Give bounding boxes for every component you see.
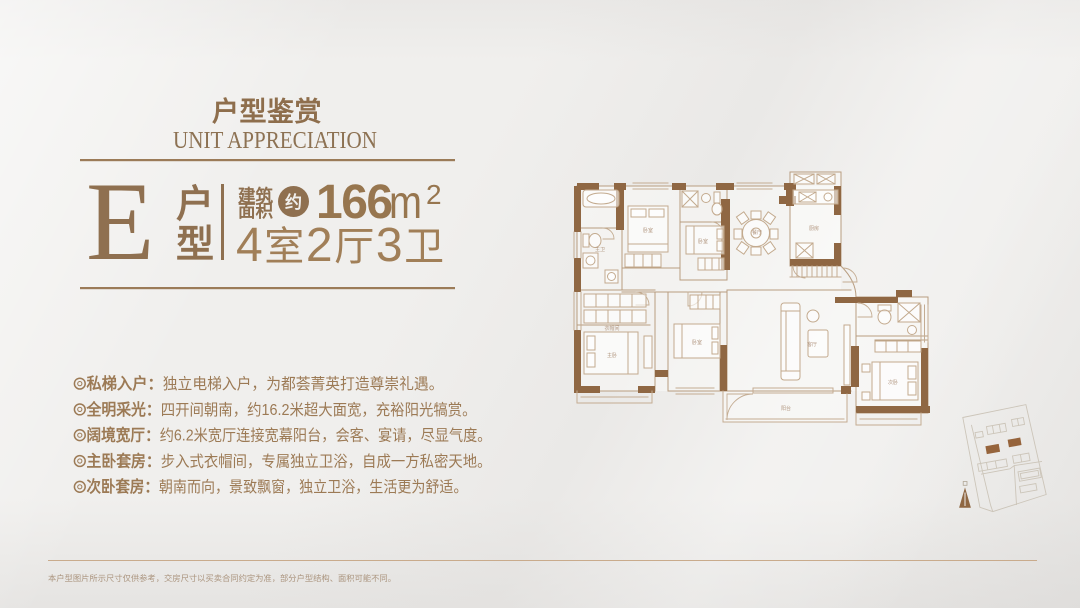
svg-text:卧室: 卧室 bbox=[698, 238, 708, 245]
svg-text:衣帽间: 衣帽间 bbox=[604, 325, 619, 332]
svg-text:面积: 面积 bbox=[238, 201, 273, 221]
svg-text:次卧套房：朝南而向，景致飘窗，独立卫浴，生活更为舒适。: 次卧套房：朝南而向，景致飘窗，独立卫浴，生活更为舒适。 bbox=[87, 477, 468, 496]
svg-text:卧室: 卧室 bbox=[692, 339, 702, 346]
svg-text:阔境宽厅：约6.2米宽厅连接宽幕阳台，会客、宴请，尽显气度。: 阔境宽厅：约6.2米宽厅连接宽幕阳台，会客、宴请，尽显气度。 bbox=[87, 426, 492, 445]
svg-text:型: 型 bbox=[176, 224, 214, 266]
svg-text:4室2厅3卫: 4室2厅3卫 bbox=[236, 219, 446, 272]
svg-text:阳台: 阳台 bbox=[781, 405, 791, 412]
svg-text:客厅: 客厅 bbox=[807, 341, 817, 348]
svg-text:厨房: 厨房 bbox=[809, 225, 819, 232]
svg-text:2: 2 bbox=[426, 179, 442, 210]
svg-text:本户型图片所示尺寸仅供参考，交房尺寸以买卖合同约定为准，部分: 本户型图片所示尺寸仅供参考，交房尺寸以买卖合同约定为准，部分户型结构、面积可能不… bbox=[48, 573, 396, 583]
svg-text:UNIT APPRECIATION: UNIT APPRECIATION bbox=[173, 128, 377, 154]
svg-text:全明采光：四开间朝南，约16.2米超大面宽，充裕阳光犒赏。: 全明采光：四开间朝南，约16.2米超大面宽，充裕阳光犒赏。 bbox=[86, 400, 477, 419]
svg-text:次卧: 次卧 bbox=[888, 379, 898, 386]
svg-text:主卧套房：步入式衣帽间，专属独立卫浴，自成一方私密天地。: 主卧套房：步入式衣帽间，专属独立卫浴，自成一方私密天地。 bbox=[87, 451, 492, 470]
svg-text:户型鉴赏: 户型鉴赏 bbox=[212, 96, 322, 127]
svg-text:主卧: 主卧 bbox=[607, 352, 617, 359]
svg-text:私梯入户：独立电梯入户，为都荟菁英打造尊崇礼遇。: 私梯入户：独立电梯入户，为都荟菁英打造尊崇礼遇。 bbox=[87, 374, 444, 393]
svg-text:户: 户 bbox=[176, 184, 214, 226]
svg-text:卧室: 卧室 bbox=[643, 227, 653, 234]
svg-text:餐厅: 餐厅 bbox=[752, 229, 762, 236]
svg-text:约: 约 bbox=[285, 192, 302, 212]
svg-text:E: E bbox=[86, 160, 154, 284]
svg-text:主卫: 主卫 bbox=[595, 246, 605, 253]
